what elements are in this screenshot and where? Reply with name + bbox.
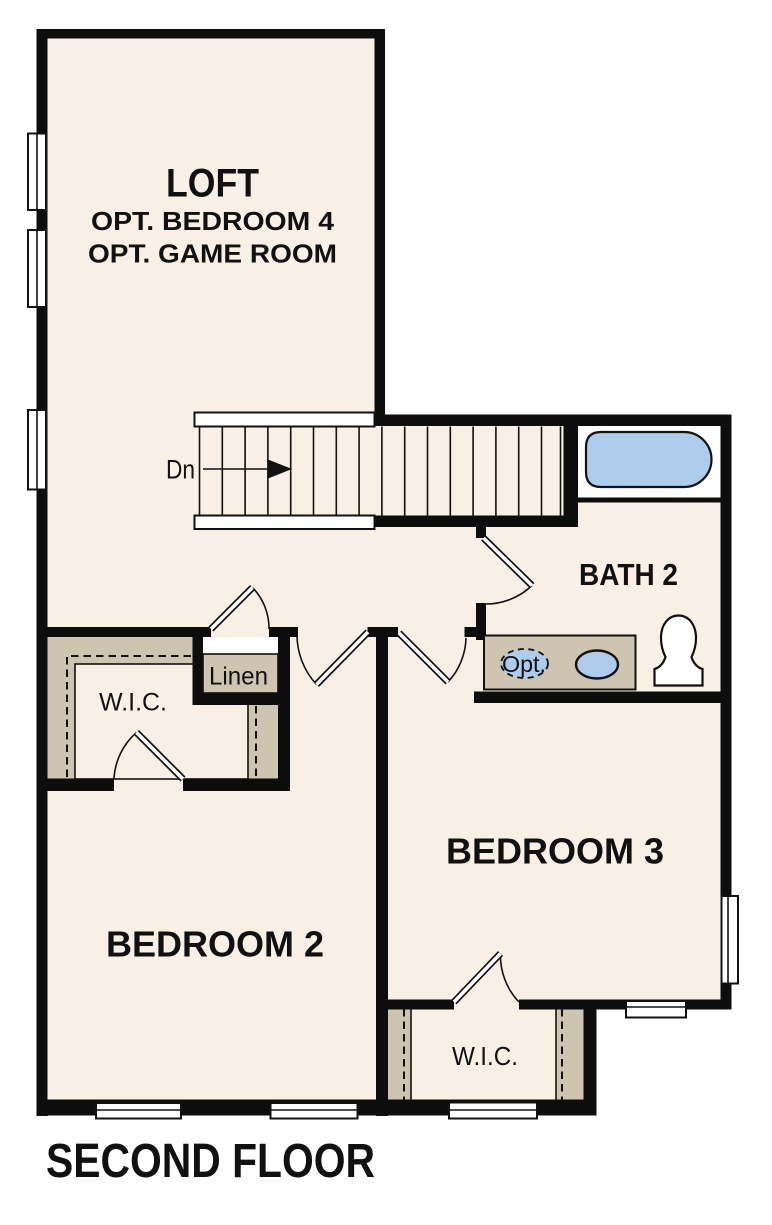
svg-text:SECOND FLOOR: SECOND FLOOR	[46, 1135, 375, 1188]
svg-text:W.I.C.: W.I.C.	[99, 689, 167, 717]
svg-text:BATH 2: BATH 2	[579, 557, 678, 592]
svg-text:Dn: Dn	[166, 455, 195, 485]
svg-text:W.I.C.: W.I.C.	[452, 1041, 518, 1071]
svg-text:Opt.: Opt.	[502, 651, 546, 677]
svg-text:OPT. GAME ROOM: OPT. GAME ROOM	[88, 241, 337, 269]
svg-text:BEDROOM 2: BEDROOM 2	[106, 924, 324, 965]
svg-text:OPT. BEDROOM 4: OPT. BEDROOM 4	[91, 208, 335, 236]
svg-text:BEDROOM 3: BEDROOM 3	[446, 831, 664, 872]
svg-text:Linen: Linen	[209, 663, 268, 691]
svg-text:LOFT: LOFT	[166, 162, 259, 206]
